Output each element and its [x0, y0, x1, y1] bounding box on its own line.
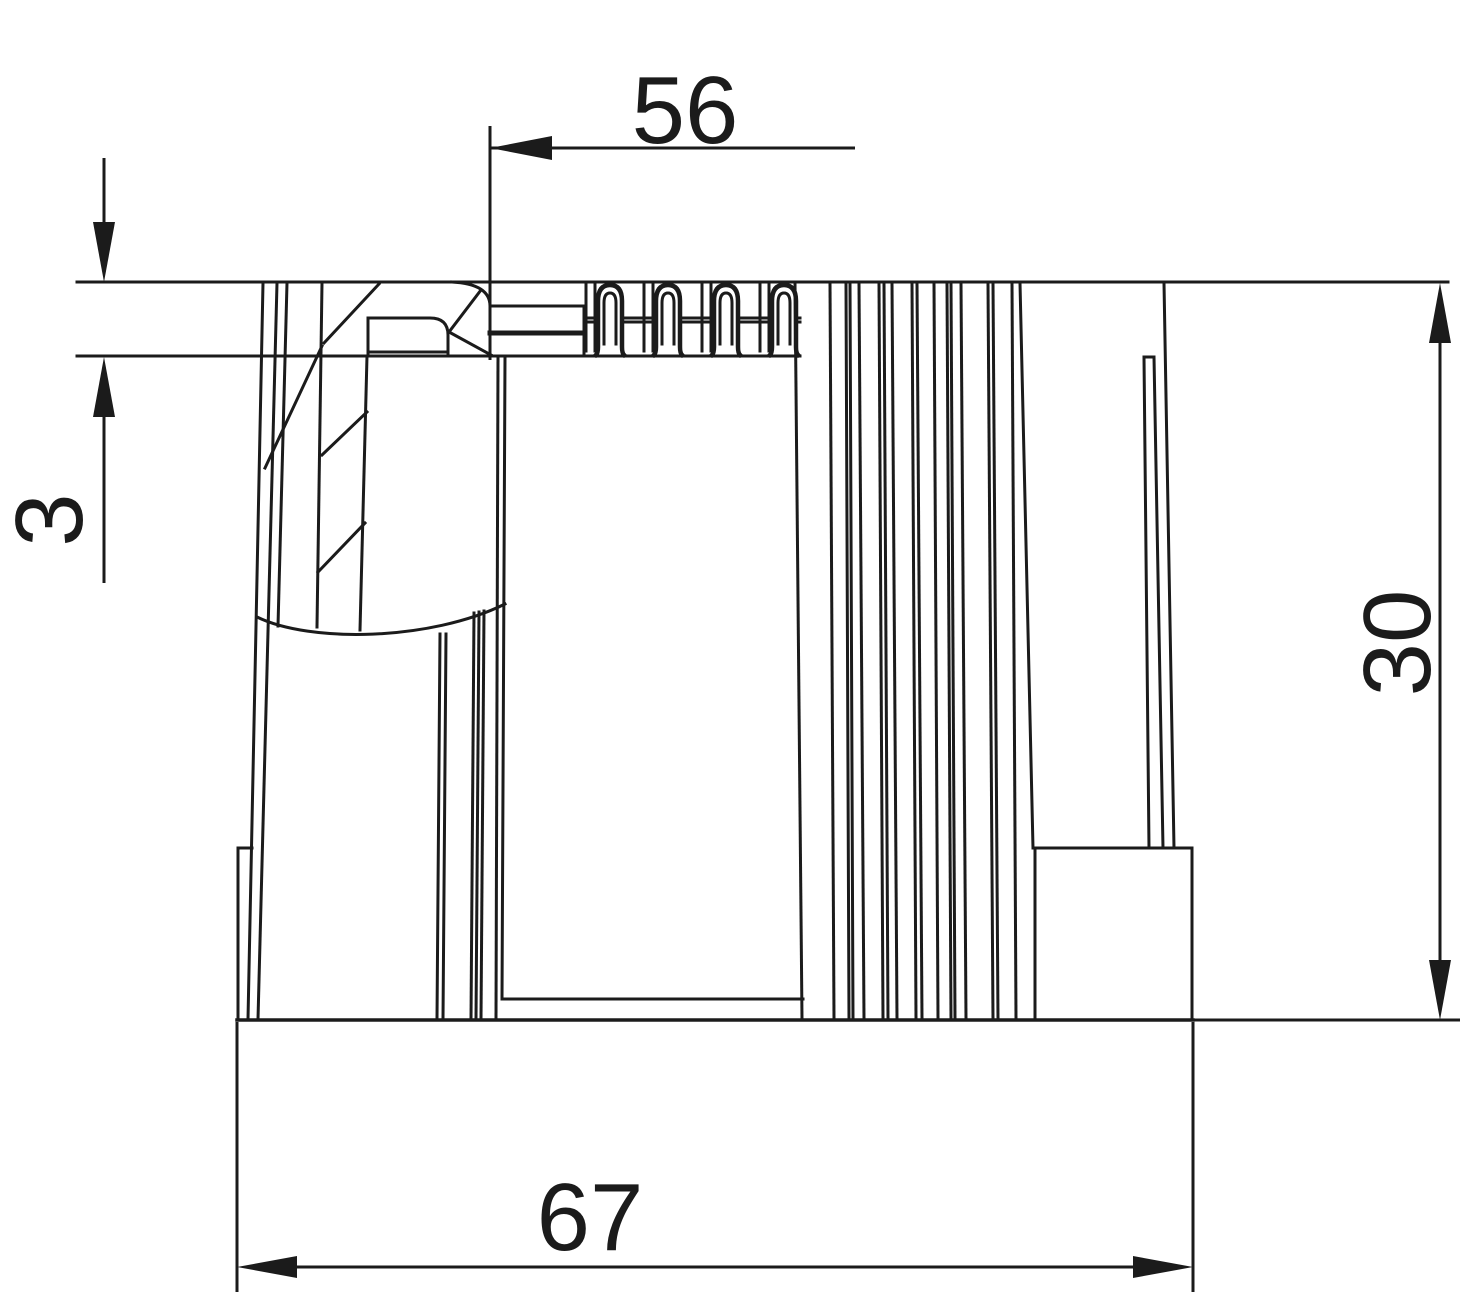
part-body	[77, 282, 1448, 1020]
dim-top-value: 56	[632, 57, 739, 164]
corner-chamfer	[449, 282, 491, 355]
inner-lip	[368, 318, 448, 353]
dim-right-value: 30	[1344, 590, 1451, 697]
dim56-arrow-left	[490, 136, 552, 160]
dim-left-value: 3	[0, 493, 103, 546]
cone-bottom-arc	[257, 604, 505, 634]
right-section	[1144, 283, 1174, 848]
left-cone-edges	[248, 283, 367, 1019]
castellations	[584, 283, 800, 355]
rib-lines	[795, 283, 1033, 1019]
technical-drawing-canvas: 56 3 30 67	[0, 0, 1465, 1293]
mid-section-edges	[437, 357, 803, 1019]
technical-drawing-page: 56 3 30 67	[0, 0, 1465, 1293]
dimension-bottom-67	[237, 1022, 1193, 1292]
dim67-arrow-right	[1133, 1256, 1193, 1278]
dim3-arrow-down	[93, 222, 115, 282]
dim67-arrow-left	[237, 1256, 297, 1278]
dim-bottom-value: 67	[537, 1164, 644, 1271]
dim30-arrow-up	[1429, 283, 1451, 343]
dim3-arrow-up	[93, 357, 115, 417]
dim30-arrow-down	[1429, 960, 1451, 1020]
base-flange	[237, 848, 1193, 1020]
